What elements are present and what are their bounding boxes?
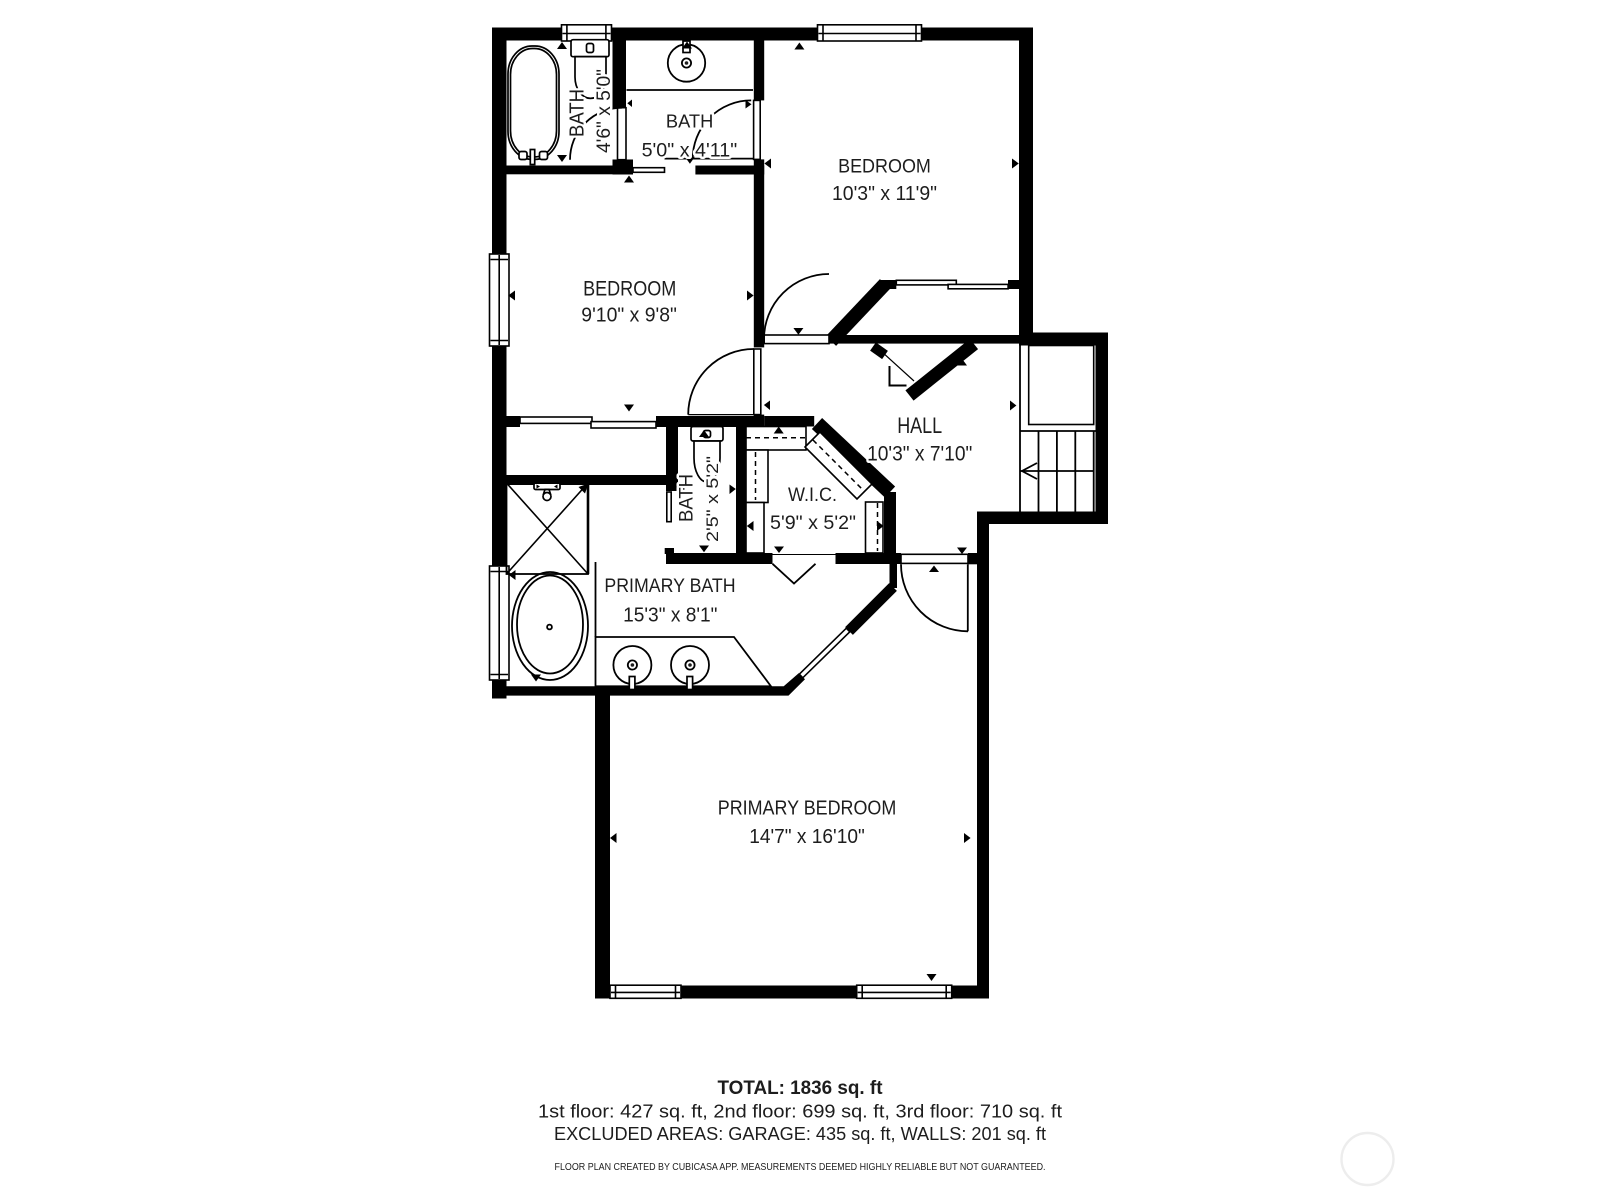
svg-text:4'6" x 5'0": 4'6" x 5'0" [594,69,615,153]
svg-text:14'7" x 16'10": 14'7" x 16'10" [749,826,865,848]
svg-text:BEDROOM: BEDROOM [583,278,676,301]
svg-text:5'9" x 5'2": 5'9" x 5'2" [770,512,856,534]
svg-text:2'5" x 5'2": 2'5" x 5'2" [703,456,722,542]
svg-text:9'10" x 9'8": 9'10" x 9'8" [581,303,677,326]
svg-text:10'3" x 7'10": 10'3" x 7'10" [867,443,972,466]
svg-text:W.I.C.: W.I.C. [788,485,837,506]
svg-text:TOTAL: 1836 sq. ft: TOTAL: 1836 sq. ft [718,1078,884,1099]
svg-text:10'3" x 11'9": 10'3" x 11'9" [832,183,937,205]
svg-text:BATH: BATH [567,89,589,137]
svg-text:PRIMARY BEDROOM: PRIMARY BEDROOM [718,798,897,820]
svg-text:BATH: BATH [677,474,698,522]
svg-text:BATH: BATH [666,111,713,132]
svg-text:15'3" x 8'1": 15'3" x 8'1" [623,604,717,626]
svg-text:1st floor: 427 sq. ft, 2nd flo: 1st floor: 427 sq. ft, 2nd floor: 699 sq… [538,1101,1062,1122]
svg-text:FLOOR PLAN CREATED BY CUBICASA: FLOOR PLAN CREATED BY CUBICASA APP. MEAS… [555,1162,1046,1173]
svg-text:HALL: HALL [897,413,942,438]
svg-text:EXCLUDED AREAS: GARAGE: 435 sq: EXCLUDED AREAS: GARAGE: 435 sq. ft, WALL… [554,1123,1046,1144]
svg-text:BEDROOM: BEDROOM [838,155,931,177]
svg-text:PRIMARY BATH: PRIMARY BATH [604,576,735,597]
svg-text:5'0" x 4'11": 5'0" x 4'11" [642,140,738,161]
